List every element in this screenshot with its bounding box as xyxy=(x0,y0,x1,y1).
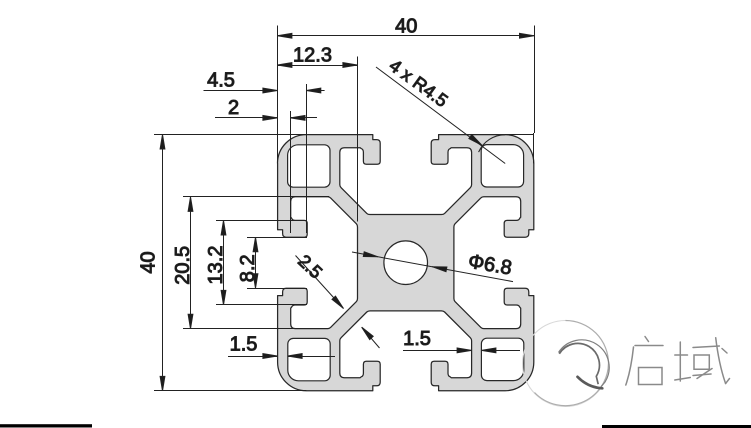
svg-text:1.5: 1.5 xyxy=(403,328,431,350)
svg-text:40: 40 xyxy=(138,251,160,273)
svg-text:8.2: 8.2 xyxy=(237,254,259,282)
svg-text:4.5: 4.5 xyxy=(207,70,235,92)
svg-text:1.5: 1.5 xyxy=(230,334,258,356)
svg-text:40: 40 xyxy=(395,15,417,37)
svg-text:13.2: 13.2 xyxy=(205,246,227,285)
svg-text:20.5: 20.5 xyxy=(172,246,194,285)
svg-text:2: 2 xyxy=(228,97,239,119)
svg-text:12.3: 12.3 xyxy=(293,45,332,67)
